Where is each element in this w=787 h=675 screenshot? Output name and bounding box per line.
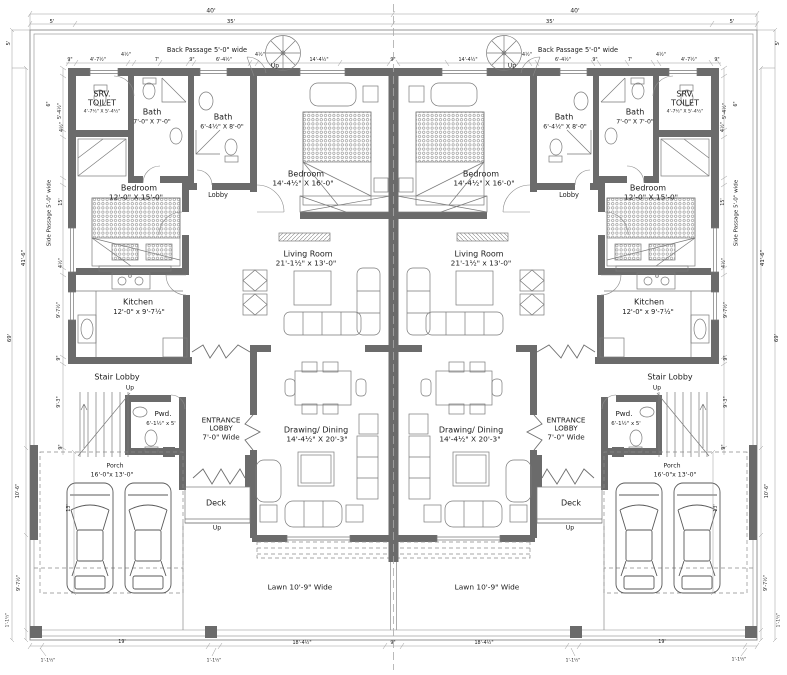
- floor-plan-drawing: [0, 0, 787, 675]
- party-wall: [389, 4, 399, 670]
- floor-plan-page: SRV. TOILET4'-7½" X 5'-4½"Bath7'-0" X 7'…: [0, 0, 787, 675]
